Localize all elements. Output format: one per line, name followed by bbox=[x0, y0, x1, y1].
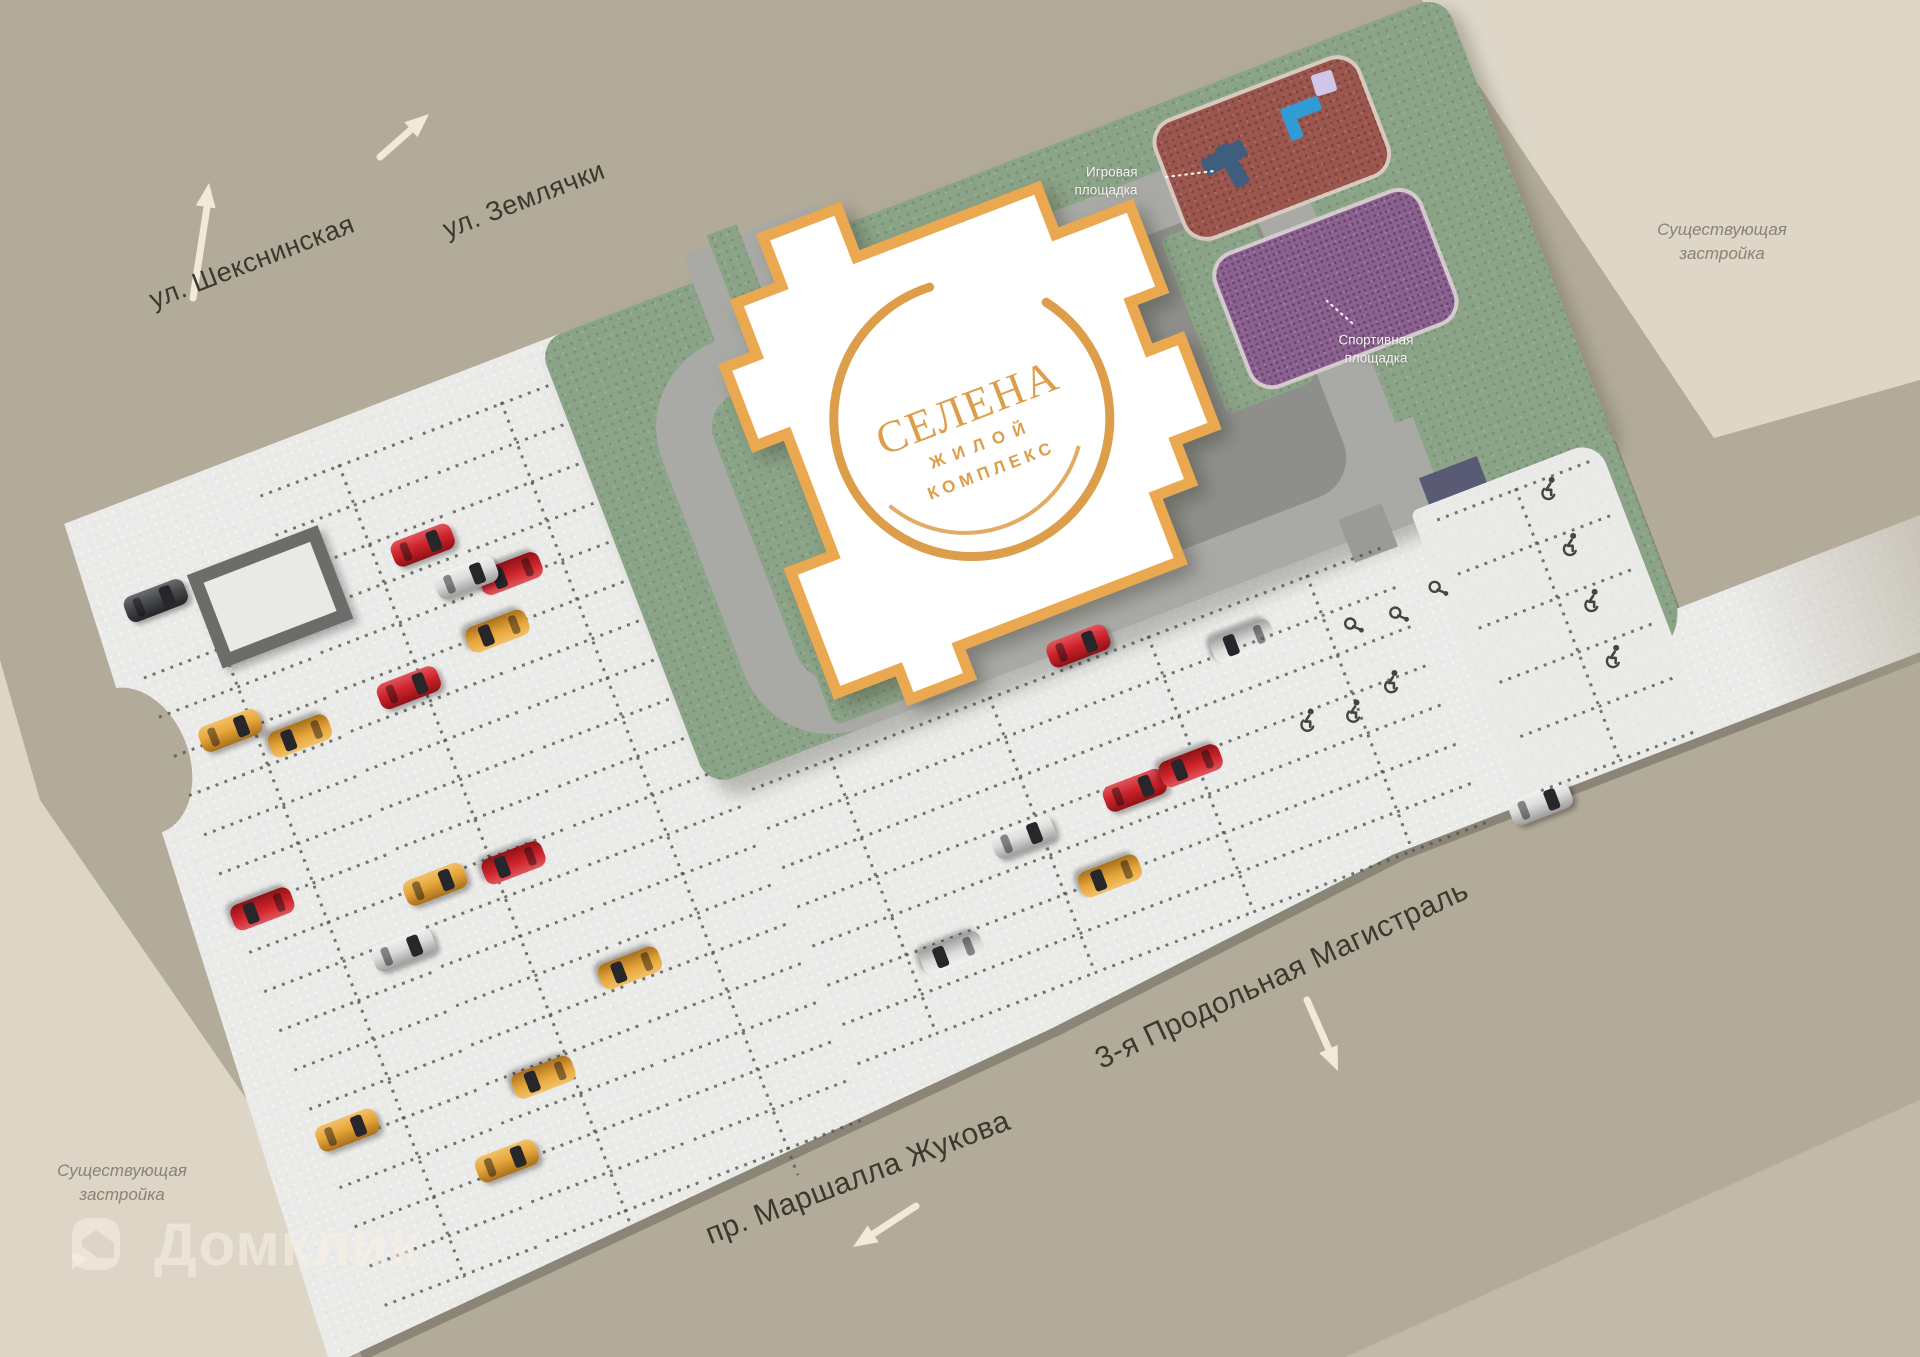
label-leader-line bbox=[1327, 301, 1352, 323]
existing-development-label-bottom-left: Существующая застройка bbox=[57, 1159, 187, 1207]
playground-label: Игровая площадка bbox=[1074, 163, 1137, 198]
site-plan-page: СЕЛЕНА ЖИЛОЙ КОМПЛЕКС ул. Шекснинская ул… bbox=[0, 0, 1920, 1357]
arrow-zhukova-icon bbox=[853, 1206, 916, 1247]
domclick-house-icon bbox=[58, 1206, 134, 1282]
sports-ground-label: Спортивная площадка bbox=[1339, 331, 1414, 366]
label-leader-line bbox=[1166, 171, 1214, 177]
domclick-watermark: Домклик bbox=[58, 1206, 421, 1282]
existing-development-label-right: Существующая застройка bbox=[1657, 218, 1787, 266]
arrow-zemlyachki-icon bbox=[380, 114, 429, 157]
arrow-magistral-icon bbox=[1307, 1000, 1338, 1071]
domclick-brand-text: Домклик bbox=[154, 1210, 421, 1279]
